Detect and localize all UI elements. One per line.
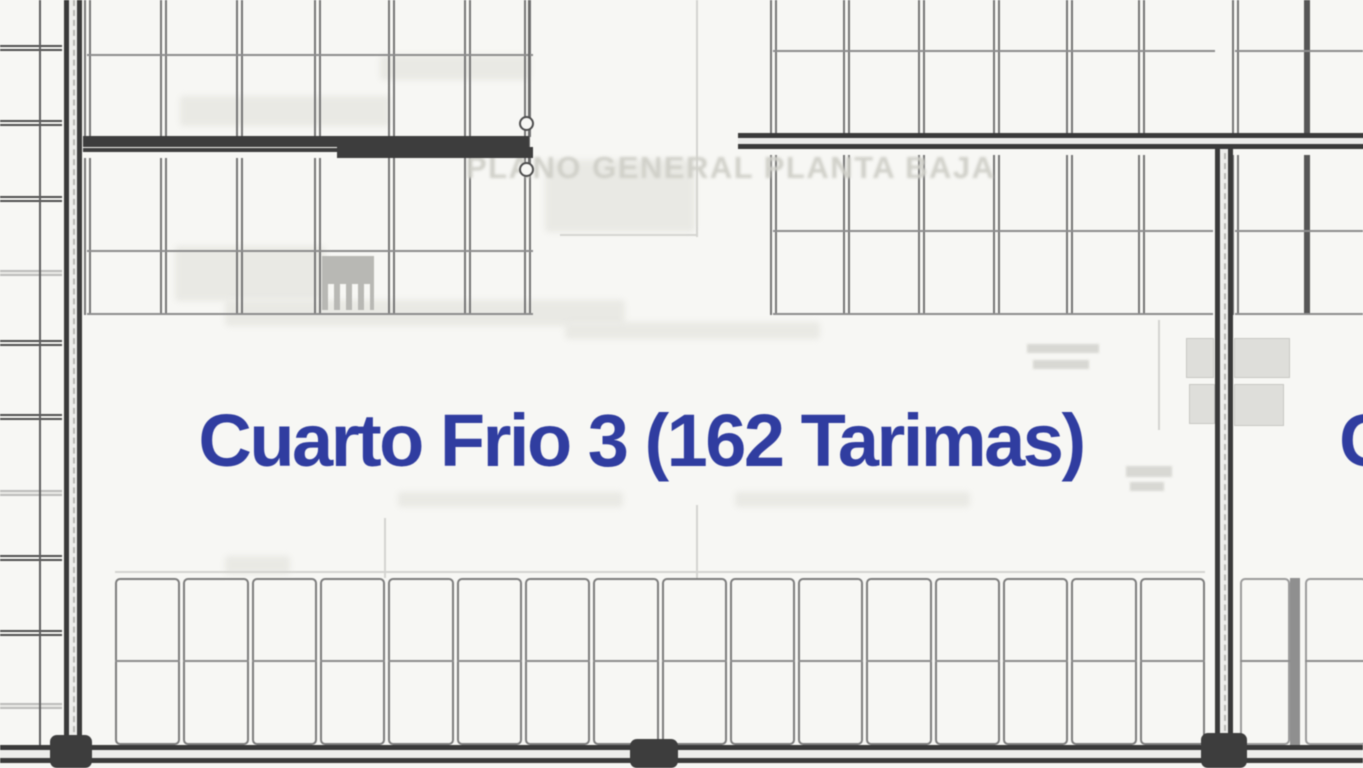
rack-upright: [1066, 0, 1073, 133]
rack-upright: [993, 0, 1000, 133]
pallet-cell-shelf-line: [1240, 660, 1290, 662]
rack-upright: [1304, 0, 1310, 133]
pallet-cell: [183, 578, 248, 745]
rack-shelf-line: [773, 230, 1213, 232]
rack-upright: [918, 0, 925, 133]
rack-top-right: [773, 0, 1215, 133]
adjacent-room-title-partial: C: [1339, 404, 1363, 478]
rack-upright: [236, 0, 243, 137]
door-hinge-circle: [519, 116, 534, 131]
rack-bottom-edge: [773, 313, 1213, 315]
faded-drawing-smudge: [735, 492, 970, 507]
pallet-cell: [115, 578, 180, 745]
rack-far-right-mid: [1235, 155, 1363, 315]
pallet-cell-shelf-line: [457, 660, 522, 662]
pallet-cell-shelf-line: [866, 660, 931, 662]
rack-upright: [1232, 0, 1239, 133]
rack-upright: [314, 0, 321, 137]
left-strip-shelf-line: [0, 340, 62, 346]
rack-upright: [236, 158, 243, 315]
pallet-cell: [252, 578, 317, 745]
illegible-small-label: [1027, 344, 1099, 353]
rack-upright: [1066, 155, 1073, 315]
door-hinge-circle: [519, 162, 534, 177]
pallet-cell: [525, 578, 590, 745]
pallet-cell-shelf-line: [1140, 660, 1205, 662]
pallet-cell-shelf-line: [115, 660, 180, 662]
pallet-cell-shelf-line: [252, 660, 317, 662]
plan-watermark-text: PLANO GENERAL PLANTA BAJA: [466, 150, 996, 186]
left-strip-shelf-line: [0, 120, 62, 126]
pallet-cell: [1071, 578, 1136, 745]
top-left-wall-segment: [337, 147, 533, 158]
rack-upright: [160, 158, 167, 315]
faint-grid-line: [384, 518, 386, 578]
pallet-cell-shelf-line: [1305, 660, 1363, 662]
rack-far-right-top: [1235, 0, 1363, 133]
left-strip-shelf-line: [0, 703, 62, 709]
faint-grid-line: [696, 0, 698, 237]
rack-shelf-line: [87, 250, 533, 252]
rack-top-left: [87, 0, 533, 137]
rack-bottom-edge: [1235, 313, 1363, 315]
pallet-cell: [320, 578, 385, 745]
pallet-row: [115, 578, 1205, 745]
pallet-cell: [593, 578, 658, 745]
pallet-cell: [388, 578, 453, 745]
pallet-cell: [1305, 578, 1363, 745]
floor-plan: PLANO GENERAL PLANTA BAJA Cuarto Frio 3 …: [0, 0, 1363, 768]
pallet-cell-shelf-line: [525, 660, 590, 662]
pallet-cell-shelf-line: [935, 660, 1000, 662]
faint-grid-line: [560, 234, 698, 236]
pallet-cell-shelf-line: [1003, 660, 1068, 662]
rack-shelf-line: [1235, 50, 1363, 52]
pallet-cell: [457, 578, 522, 745]
pallet-cell: [1140, 578, 1205, 745]
rack-upright: [388, 0, 395, 137]
rack-upright: [84, 158, 91, 315]
rack-upright: [314, 158, 321, 315]
structural-column: [1201, 733, 1247, 768]
faded-drawing-smudge: [398, 492, 623, 507]
pallet-cell-shelf-line: [388, 660, 453, 662]
pallet-cell-shelf-line: [1071, 660, 1136, 662]
top-left-wall-segment: [83, 148, 339, 152]
rack-upright: [1138, 155, 1145, 315]
top-right-wall: [738, 133, 1363, 149]
rack-shelf-line: [87, 54, 533, 56]
pallet-row-divider: [1290, 578, 1300, 745]
illegible-small-label: [1033, 360, 1089, 369]
illegible-small-label: [1130, 482, 1164, 491]
left-strip-shelf-line: [0, 490, 62, 496]
right-wall: [1215, 133, 1233, 751]
top-left-wall-segment: [83, 136, 529, 147]
room-title: Cuarto Frio 3 (162 Tarimas): [30, 404, 1252, 478]
faint-grid-line: [115, 571, 1205, 573]
hatched-detail: [322, 256, 374, 284]
left-strip-shelf-line: [0, 630, 62, 636]
equipment-outline: [1234, 338, 1290, 378]
structural-column: [630, 739, 678, 768]
pallet-cell-shelf-line: [662, 660, 727, 662]
pallet-cell: [866, 578, 931, 745]
rack-upright: [84, 0, 91, 137]
left-strip-shelf-line: [0, 196, 62, 202]
equipment-outline: [1186, 338, 1214, 378]
rack-upright: [464, 0, 471, 137]
rack-shelf-line: [1235, 230, 1363, 232]
pallet-cell-shelf-line: [320, 660, 385, 662]
pallet-cell: [798, 578, 863, 745]
pallet-cell: [662, 578, 727, 745]
rack-upright: [1304, 155, 1310, 315]
hatched-detail-teeth: [322, 284, 374, 310]
left-strip-divider: [39, 0, 41, 745]
rack-upright: [843, 0, 850, 133]
left-wall: [64, 0, 82, 752]
faint-grid-line: [696, 505, 698, 578]
rack-upright: [770, 0, 777, 133]
rack-bottom-edge: [87, 313, 533, 315]
pallet-cell-shelf-line: [730, 660, 795, 662]
faded-drawing-smudge: [565, 322, 820, 339]
left-strip-shelf-line: [0, 45, 62, 51]
rack-upright: [1138, 0, 1145, 133]
pallet-cell: [935, 578, 1000, 745]
pallet-cell: [1003, 578, 1068, 745]
pallet-cell: [1240, 578, 1290, 745]
pallet-cell-shelf-line: [798, 660, 863, 662]
rack-upright: [160, 0, 167, 137]
pallet-cell-shelf-line: [593, 660, 658, 662]
bottom-wall: [0, 745, 1363, 763]
rack-shelf-line: [773, 50, 1215, 52]
rack-upright: [388, 158, 395, 315]
left-strip-shelf-line: [0, 555, 62, 561]
structural-column: [50, 735, 92, 768]
left-strip-shelf-line: [0, 270, 62, 276]
pallet-cell-shelf-line: [183, 660, 248, 662]
rack-upright: [1232, 155, 1239, 315]
pallet-cell: [730, 578, 795, 745]
